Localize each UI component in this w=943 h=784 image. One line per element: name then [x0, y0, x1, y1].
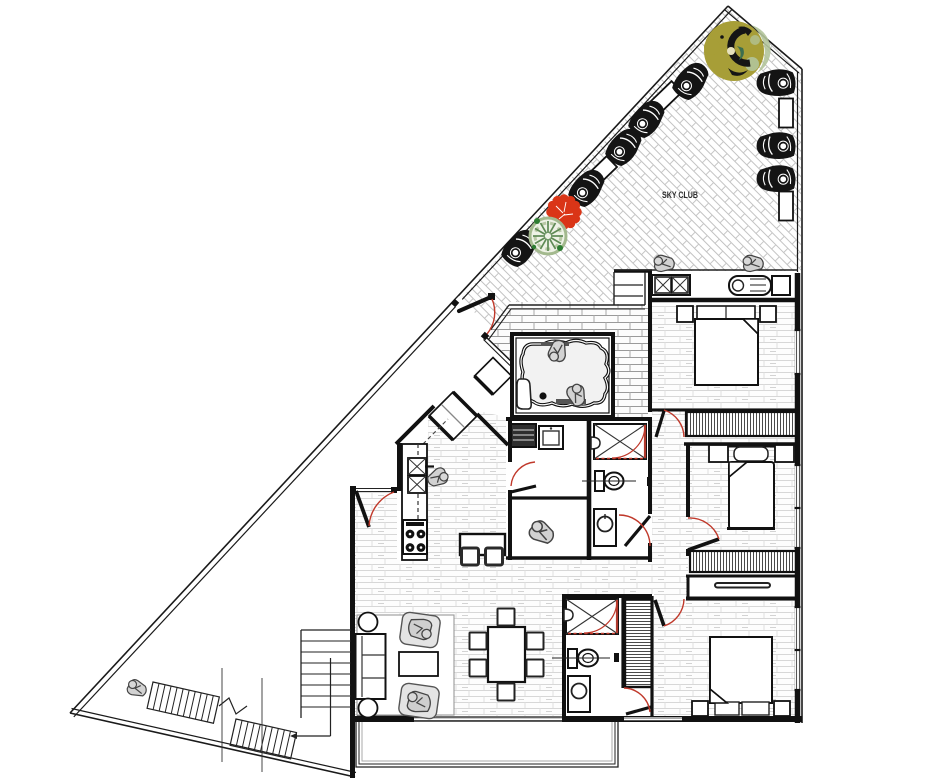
svg-text:SKY CLUB: SKY CLUB: [662, 190, 698, 201]
